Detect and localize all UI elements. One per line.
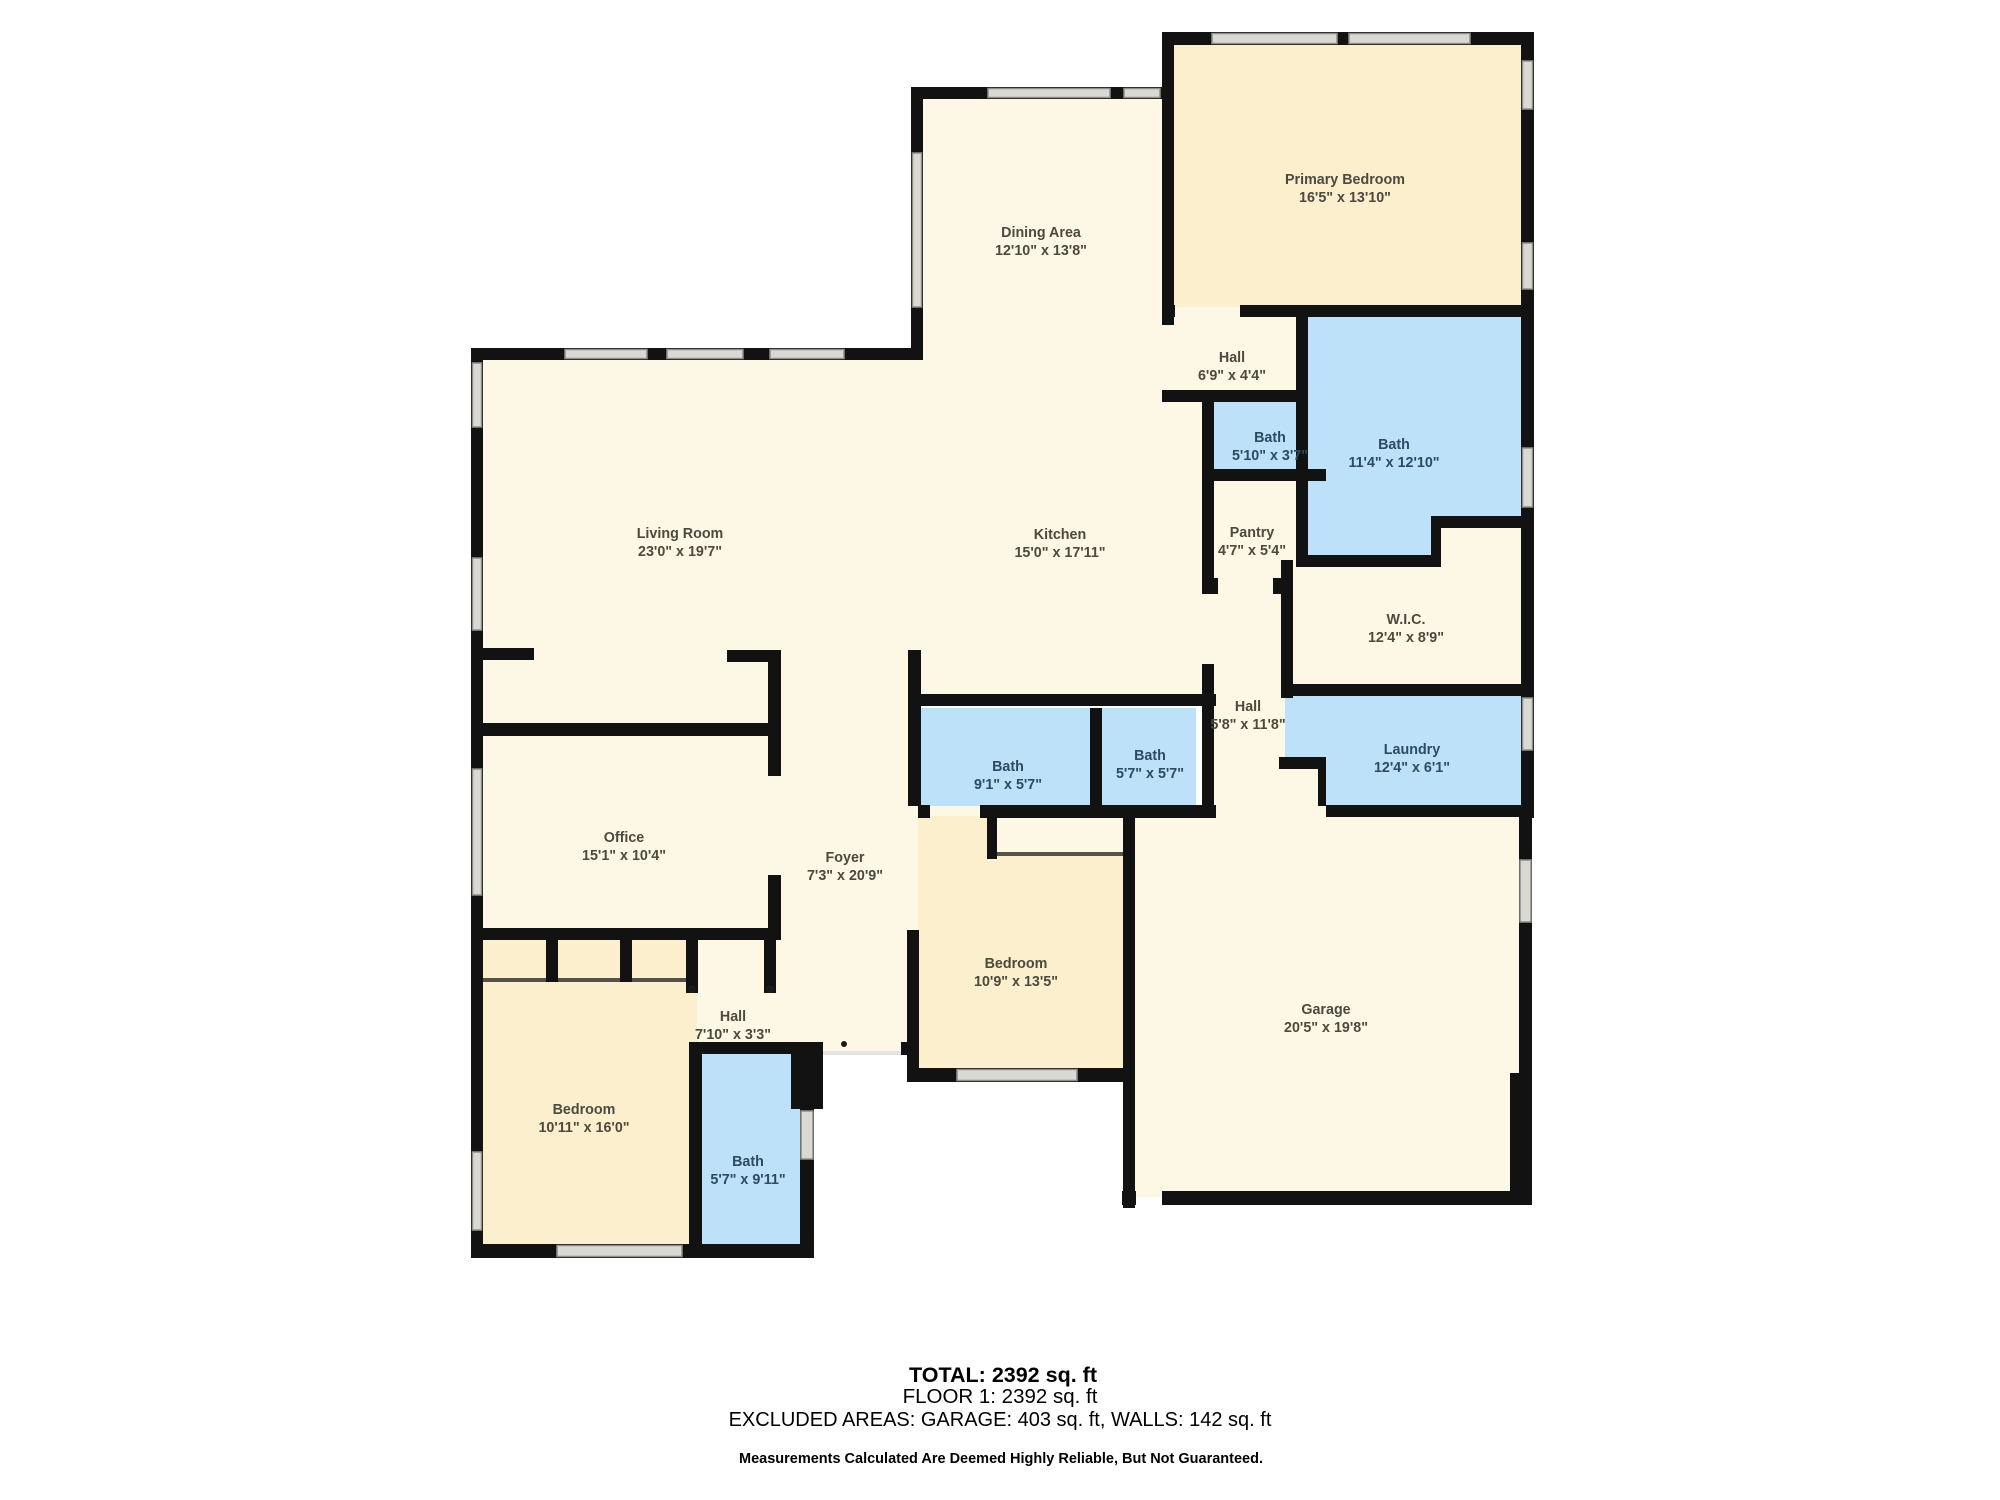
svg-text:Foyer: Foyer [826, 850, 865, 866]
svg-text:23'0" x 19'7": 23'0" x 19'7" [638, 544, 722, 560]
svg-text:Pantry: Pantry [1230, 525, 1275, 541]
svg-text:15'1" x 10'4": 15'1" x 10'4" [582, 848, 666, 864]
svg-text:Laundry: Laundry [1384, 742, 1440, 758]
svg-text:Primary Bedroom: Primary Bedroom [1285, 172, 1405, 188]
svg-text:Hall: Hall [1235, 699, 1261, 715]
svg-text:12'4" x 8'9": 12'4" x 8'9" [1368, 630, 1444, 646]
svg-text:6'9" x 4'4": 6'9" x 4'4" [1198, 368, 1266, 384]
svg-text:FLOOR 1: 2392 sq. ft: FLOOR 1: 2392 sq. ft [903, 1385, 1098, 1408]
svg-text:7'3" x 20'9": 7'3" x 20'9" [807, 868, 883, 884]
svg-text:5'8" x 11'8": 5'8" x 11'8" [1210, 717, 1285, 733]
svg-text:5'10" x 3'7": 5'10" x 3'7" [1232, 448, 1308, 464]
svg-text:Bath: Bath [992, 759, 1024, 775]
svg-text:10'9" x 13'5": 10'9" x 13'5" [974, 974, 1058, 990]
svg-text:16'5" x 13'10": 16'5" x 13'10" [1299, 190, 1391, 206]
svg-text:7'10" x 3'3": 7'10" x 3'3" [695, 1027, 771, 1043]
svg-text:Bath: Bath [1134, 748, 1166, 764]
svg-text:Bath: Bath [1254, 430, 1286, 446]
svg-text:Bath: Bath [732, 1154, 764, 1170]
svg-text:10'11" x 16'0": 10'11" x 16'0" [538, 1120, 629, 1136]
svg-text:Dining Area: Dining Area [1001, 225, 1082, 241]
svg-text:EXCLUDED AREAS: GARAGE: 403 sq: EXCLUDED AREAS: GARAGE: 403 sq. ft, WALL… [729, 1409, 1272, 1431]
svg-text:5'7" x 5'7": 5'7" x 5'7" [1116, 766, 1184, 782]
svg-text:12'10" x 13'8": 12'10" x 13'8" [995, 243, 1087, 259]
svg-text:4'7" x 5'4": 4'7" x 5'4" [1218, 543, 1286, 559]
svg-text:11'4" x 12'10": 11'4" x 12'10" [1348, 455, 1439, 471]
svg-text:Hall: Hall [1219, 350, 1245, 366]
svg-text:Office: Office [604, 830, 645, 846]
svg-text:Garage: Garage [1301, 1002, 1350, 1018]
svg-text:12'4" x 6'1": 12'4" x 6'1" [1374, 760, 1450, 776]
svg-text:9'1" x 5'7": 9'1" x 5'7" [974, 777, 1042, 793]
svg-text:15'0" x 17'11": 15'0" x 17'11" [1014, 545, 1105, 561]
svg-text:Living Room: Living Room [637, 526, 724, 542]
svg-text:Bedroom: Bedroom [553, 1102, 616, 1118]
svg-text:Hall: Hall [720, 1009, 746, 1025]
svg-text:Measurements Calculated Are De: Measurements Calculated Are Deemed Highl… [739, 1451, 1263, 1467]
svg-text:Bath: Bath [1378, 437, 1410, 453]
svg-text:Kitchen: Kitchen [1034, 527, 1086, 543]
svg-text:5'7" x 9'11": 5'7" x 9'11" [710, 1172, 785, 1188]
svg-text:W.I.C.: W.I.C. [1387, 612, 1426, 628]
svg-text:20'5" x 19'8": 20'5" x 19'8" [1284, 1020, 1368, 1036]
svg-text:TOTAL: 2392 sq. ft: TOTAL: 2392 sq. ft [909, 1363, 1097, 1387]
svg-text:Bedroom: Bedroom [985, 956, 1048, 972]
